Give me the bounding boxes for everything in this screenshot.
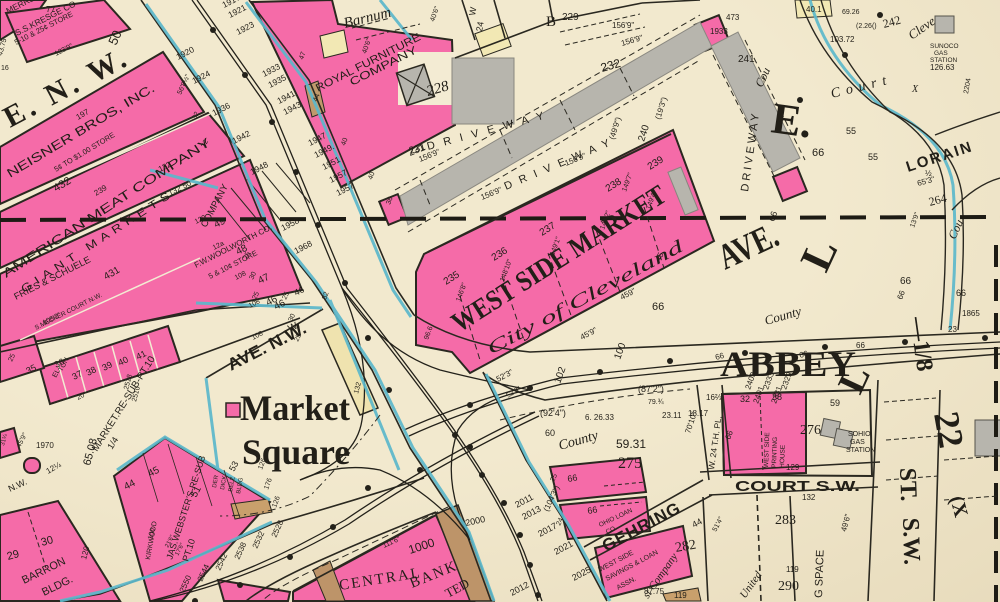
svg-text:X: X	[911, 84, 919, 95]
svg-text:275: 275	[618, 455, 642, 472]
svg-text:66: 66	[856, 341, 865, 350]
svg-text:6. 26.33: 6. 26.33	[585, 413, 614, 422]
svg-text:77: 77	[46, 4, 56, 14]
svg-text:40.1: 40.1	[806, 5, 822, 14]
svg-text:1970: 1970	[36, 441, 54, 450]
svg-text:G SPACE: G SPACE	[813, 550, 827, 598]
svg-text:1865: 1865	[962, 309, 980, 318]
svg-text:103.72: 103.72	[830, 35, 855, 44]
svg-text:59.31: 59.31	[616, 437, 646, 451]
svg-text:24: 24	[474, 21, 486, 33]
svg-text:16⅔: 16⅔	[706, 393, 722, 402]
svg-text:23.11: 23.11	[662, 411, 682, 420]
svg-text:473: 473	[726, 13, 740, 22]
svg-text:PRINTING: PRINTING	[771, 437, 779, 468]
svg-text:½: ½	[925, 169, 932, 178]
svg-text:66: 66	[812, 147, 824, 159]
svg-text:66: 66	[567, 472, 579, 484]
svg-text:SUNOCO: SUNOCO	[930, 43, 959, 50]
svg-text:ST.: ST.	[894, 467, 921, 501]
svg-text:GAS: GAS	[850, 439, 865, 446]
svg-text:119: 119	[674, 591, 687, 600]
svg-text:132: 132	[802, 493, 816, 502]
svg-text:283: 283	[775, 513, 796, 528]
svg-text:241: 241	[738, 54, 755, 65]
svg-text:(87'2"): (87'2")	[638, 384, 664, 394]
svg-text:(2.26(): (2.26()	[856, 23, 877, 30]
svg-text:SOHIO: SOHIO	[848, 431, 871, 438]
svg-text:WEST SIDE: WEST SIDE	[763, 432, 771, 469]
svg-text:290: 290	[778, 579, 799, 594]
svg-text:22: 22	[926, 408, 972, 450]
svg-text:126.63: 126.63	[930, 63, 955, 72]
svg-text:1933: 1933	[710, 27, 728, 36]
svg-text:32: 32	[740, 394, 750, 404]
svg-text:119: 119	[786, 565, 799, 574]
svg-text:79.¾: 79.¾	[648, 399, 664, 406]
svg-text:59: 59	[830, 398, 840, 408]
svg-text:55: 55	[868, 152, 878, 162]
svg-text:276: 276	[800, 423, 821, 438]
svg-text:(92'4"): (92'4")	[540, 408, 566, 418]
svg-text:156'9": 156'9"	[612, 21, 634, 30]
svg-text:66: 66	[900, 276, 912, 287]
svg-text:16: 16	[1, 65, 9, 72]
svg-text:E.: E.	[769, 93, 816, 147]
svg-text:GAS: GAS	[934, 50, 948, 57]
svg-text:Market: Market	[240, 388, 350, 428]
svg-text:66: 66	[652, 301, 664, 313]
svg-text:66: 66	[956, 288, 966, 298]
svg-text:87.75: 87.75	[644, 587, 665, 596]
svg-text:COURT S.W.: COURT S.W.	[735, 478, 860, 495]
svg-text:23: 23	[948, 325, 957, 334]
svg-text:S.W.: S.W.	[897, 517, 925, 565]
svg-text:69.26: 69.26	[842, 9, 860, 16]
svg-text:B: B	[546, 14, 556, 30]
svg-text:66: 66	[587, 504, 599, 516]
svg-text:60: 60	[545, 428, 555, 438]
svg-text:55: 55	[846, 126, 856, 136]
svg-text:229: 229	[562, 12, 579, 23]
svg-text:129: 129	[786, 463, 800, 472]
svg-text:STATION: STATION	[846, 447, 875, 454]
